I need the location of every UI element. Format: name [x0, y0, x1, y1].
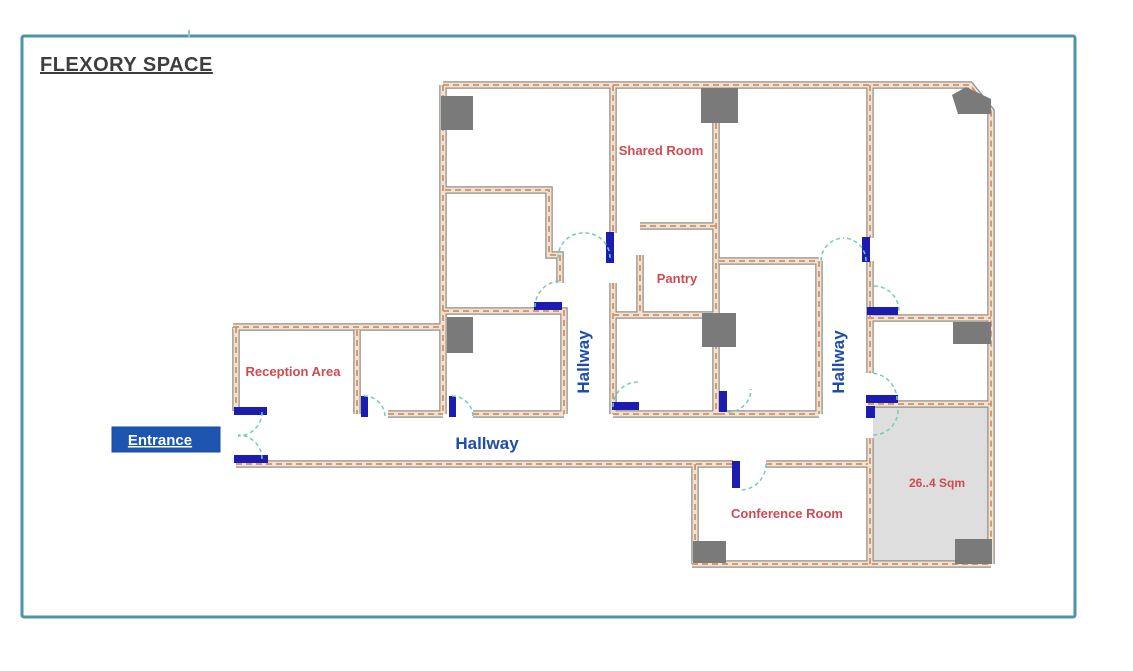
- floor-plan-page: FLEXORY SPACE: [0, 0, 1133, 671]
- floor-plan-canvas: FLEXORY SPACE: [0, 0, 1133, 671]
- hallway-label-horizontal: Hallway: [455, 434, 519, 453]
- door-leaf: [606, 232, 614, 263]
- room-label-pantry: Pantry: [657, 271, 698, 286]
- column: [447, 317, 473, 353]
- conference-door-leaf: [732, 461, 740, 488]
- room-label-shared-room: Shared Room: [619, 143, 704, 158]
- door-leaf: [866, 395, 898, 403]
- column: [693, 541, 726, 563]
- door-swing-arc: [821, 238, 844, 261]
- door-swing-arc: [728, 389, 751, 412]
- entrance-door-leaf-bottom: [234, 455, 268, 463]
- hallway-label-vertical-left: Hallway: [574, 330, 593, 394]
- door-leaf: [866, 406, 875, 418]
- entrance-badge: Entrance: [112, 427, 220, 452]
- room-label-conference: Conference Room: [731, 506, 843, 521]
- entrance-label: Entrance: [128, 432, 192, 449]
- area-size-label: 26..4 Sqm: [909, 476, 965, 490]
- column: [702, 313, 736, 347]
- door-swing-arc: [740, 464, 766, 490]
- door-leaf: [612, 402, 639, 410]
- hallway-labels: Hallway Hallway Hallway: [455, 330, 848, 453]
- column: [953, 322, 991, 344]
- door-swings: [238, 233, 899, 490]
- door-leaf: [867, 307, 898, 315]
- door-swing-arc: [238, 412, 262, 436]
- door-leaf: [361, 396, 368, 417]
- corner-column: [952, 87, 991, 114]
- column: [441, 96, 473, 130]
- page-title: FLEXORY SPACE: [40, 54, 213, 76]
- door-leaf: [449, 396, 456, 417]
- column: [701, 88, 738, 123]
- room-label-reception: Reception Area: [246, 364, 342, 379]
- column: [955, 539, 992, 564]
- door-leaf: [719, 391, 727, 412]
- door-leaf: [534, 302, 562, 310]
- hallway-label-vertical-right: Hallway: [829, 330, 848, 394]
